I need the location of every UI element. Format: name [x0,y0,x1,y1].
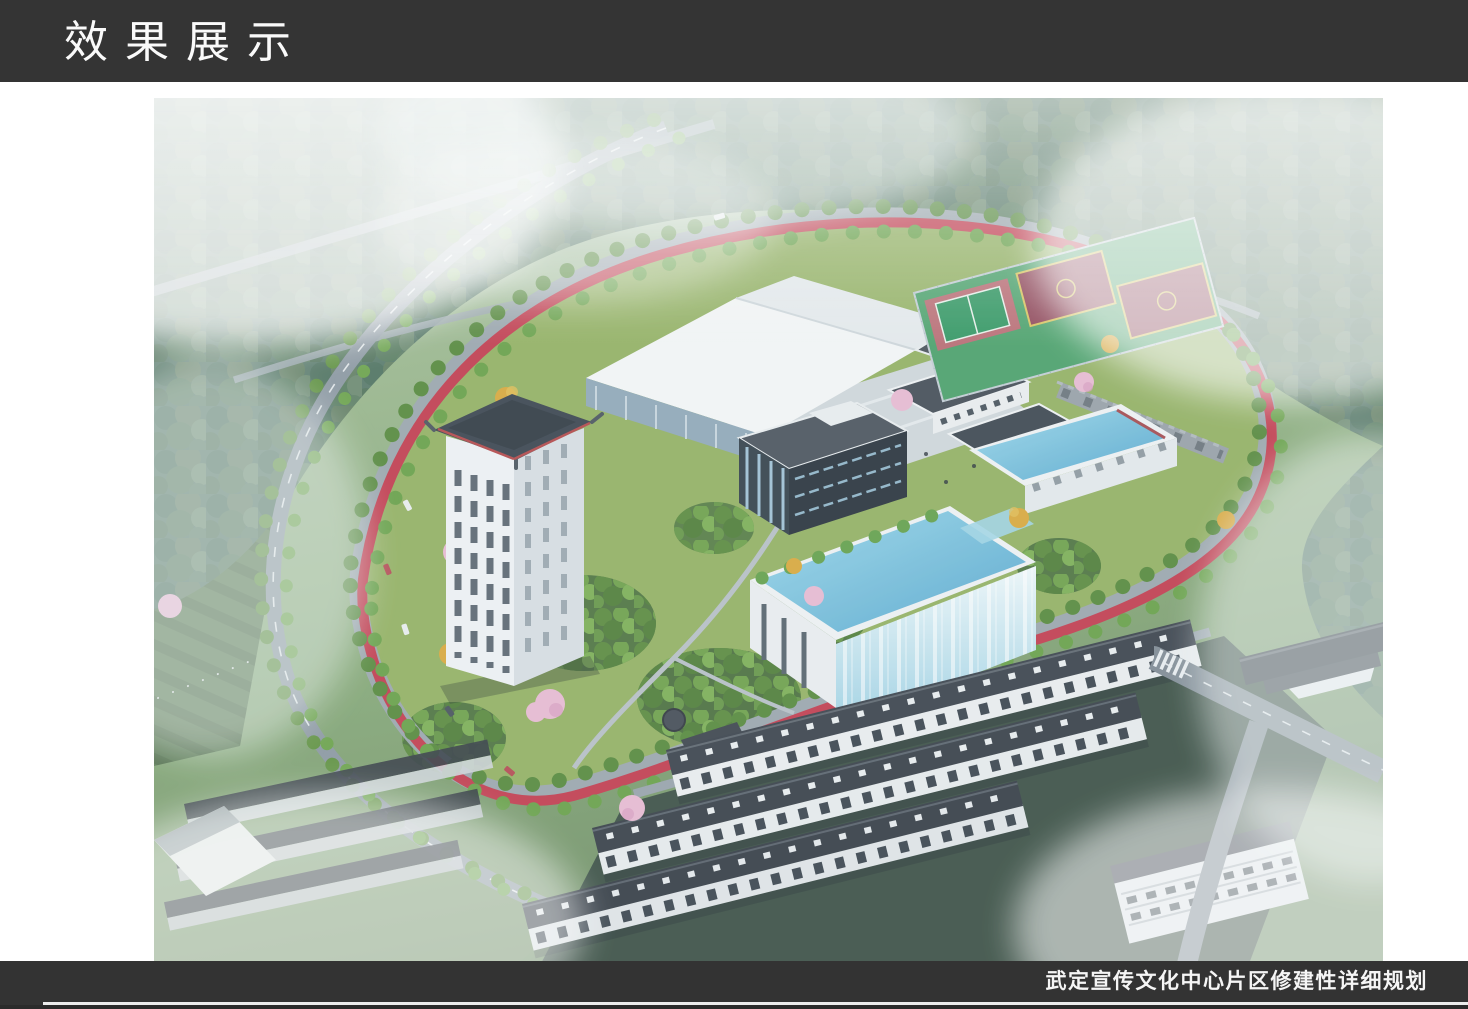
footer-rule [43,1002,1468,1005]
slide-footer-bar: 武定宣传文化中心片区修建性详细规划 [0,961,1468,1009]
aerial-rendering [154,98,1383,977]
plan-title: 武定宣传文化中心片区修建性详细规划 [1046,961,1429,1002]
aerial-rendering-figure [154,98,1383,977]
haze-tint [154,98,1383,977]
page-title: 效 果 展 示 [64,0,294,82]
slide-header-bar: 效 果 展 示 [0,0,1468,82]
footer-base-strip [0,1005,1468,1009]
